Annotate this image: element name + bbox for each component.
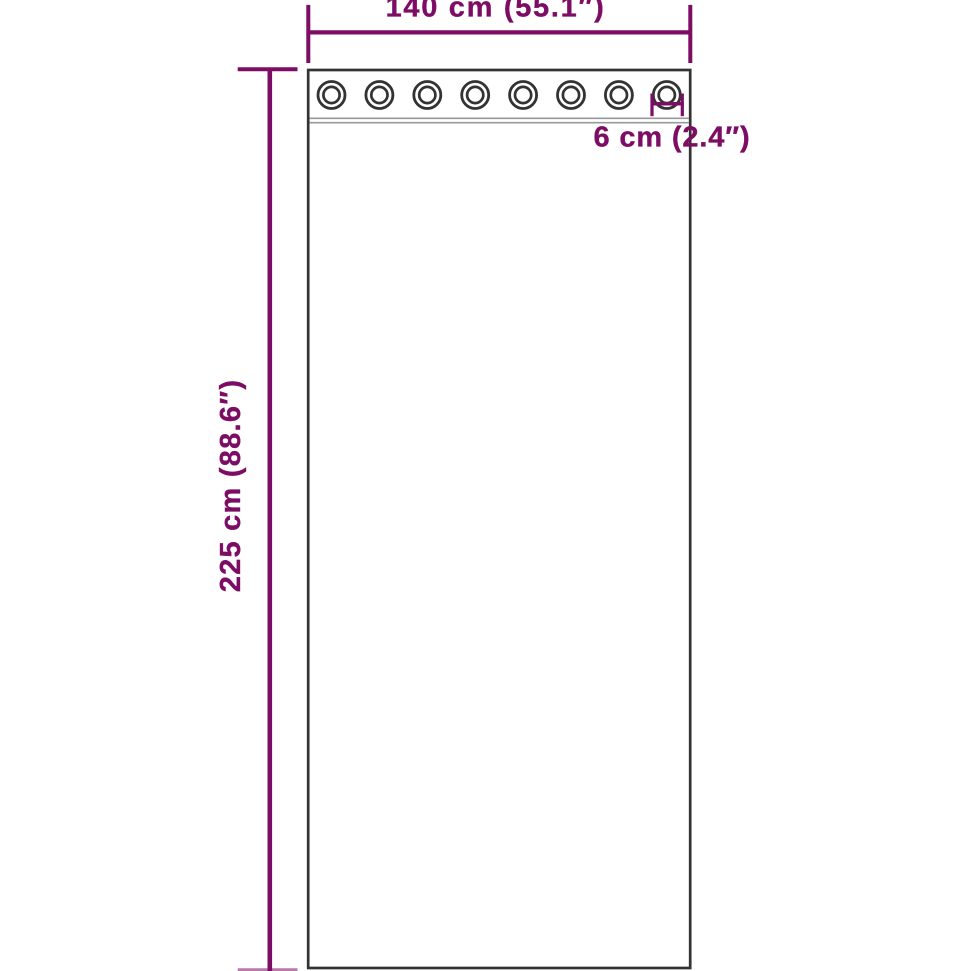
svg-text:225 cm (88.6″): 225 cm (88.6″) (215, 379, 247, 593)
svg-text:6 cm (2.4″): 6 cm (2.4″) (593, 121, 750, 153)
svg-text:140 cm (55.1″): 140 cm (55.1″) (386, 0, 606, 24)
